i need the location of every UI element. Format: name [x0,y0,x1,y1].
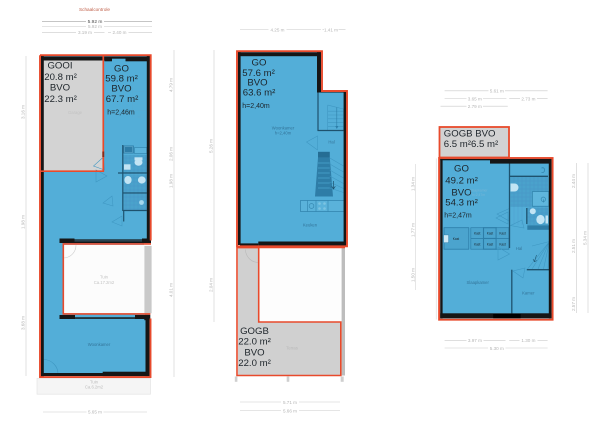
svg-text:Kast: Kast [499,232,505,236]
svg-text:BVO: BVO [111,83,131,94]
svg-text:2.40 m: 2.40 m [112,30,126,35]
svg-text:63.6 m²: 63.6 m² [243,88,276,99]
svg-text:h=2,40m: h=2,40m [242,103,270,110]
svg-text:BVO: BVO [244,348,264,359]
svg-text:3.68 m: 3.68 m [21,316,26,330]
svg-text:GO: GO [454,164,469,175]
svg-text:1.34 m: 1.34 m [410,177,415,191]
svg-text:1.98 m: 1.98 m [169,174,174,188]
svg-text:6.5 m²6.5 m²: 6.5 m²6.5 m² [444,139,499,150]
svg-text:h=2,46m: h=2,46m [107,109,135,116]
svg-text:1.98 m: 1.98 m [21,215,26,229]
svg-text:2.44 m: 2.44 m [571,174,576,188]
svg-text:2.51 m: 2.51 m [571,239,576,253]
svg-text:5.61 m: 5.61 m [490,89,504,94]
svg-text:GOGB BVO: GOGB BVO [444,128,496,139]
svg-text:h=2,40m: h=2,40m [275,131,292,136]
svg-text:1.77 m: 1.77 m [410,223,415,237]
svg-text:5.26 m: 5.26 m [209,139,214,153]
svg-text:5.65 m: 5.65 m [88,410,102,415]
svg-text:67.7 m²: 67.7 m² [106,94,139,105]
svg-text:Kast: Kast [474,232,480,236]
svg-text:3.97 m: 3.97 m [468,338,482,343]
svg-text:Kamer: Kamer [522,290,535,295]
svg-text:Schaalcontrole: Schaalcontrole [79,7,110,12]
svg-text:22.3 m²: 22.3 m² [44,94,77,105]
svg-text:2.73 m: 2.73 m [521,96,535,101]
svg-text:GOOI: GOOI [47,60,72,71]
svg-text:Kast: Kast [487,242,493,246]
svg-text:Kast: Kast [487,232,493,236]
svg-text:Ca.17.2m2: Ca.17.2m2 [94,280,115,285]
svg-text:3.16 m: 3.16 m [21,105,26,119]
svg-text:5.66 m: 5.66 m [283,409,297,414]
svg-text:h=2,47m: h=2,47m [472,193,485,197]
svg-text:5.92 m: 5.92 m [88,24,102,29]
svg-text:Tuin: Tuin [100,275,109,280]
svg-text:Ca.6.2m2: Ca.6.2m2 [85,385,104,390]
svg-text:2.06 m: 2.06 m [169,147,174,161]
svg-text:1.50 m: 1.50 m [410,268,415,282]
svg-text:4.79 m: 4.79 m [169,78,174,92]
svg-text:Slaapkamer: Slaapkamer [467,280,490,285]
svg-text:BVO: BVO [50,82,70,93]
svg-text:5.30 m: 5.30 m [490,346,504,351]
svg-text:22.0 m²: 22.0 m² [238,337,271,348]
svg-text:Kast: Kast [499,242,505,246]
svg-text:4.25 m: 4.25 m [270,27,284,32]
svg-text:Garage: Garage [68,110,83,115]
svg-text:Kast: Kast [474,242,480,246]
svg-text:Kast: Kast [453,237,459,241]
svg-text:1.41 m: 1.41 m [324,27,338,32]
svg-text:Keuken: Keuken [303,223,318,228]
svg-text:Hal: Hal [516,246,522,251]
svg-text:54.3 m²: 54.3 m² [445,197,478,208]
svg-text:5.71 m: 5.71 m [283,400,297,405]
svg-text:1.30 m: 1.30 m [521,338,535,343]
svg-text:h=2,47m: h=2,47m [444,212,472,219]
svg-text:GOGB: GOGB [240,326,269,337]
svg-text:Woonkamer: Woonkamer [88,342,111,347]
svg-text:GO: GO [252,58,267,69]
svg-text:4.01 m: 4.01 m [169,283,174,297]
svg-text:2.57 m: 2.57 m [571,297,576,311]
svg-text:5.34 m: 5.34 m [583,231,588,245]
svg-text:22.0 m²: 22.0 m² [238,358,271,369]
svg-text:3.19 m: 3.19 m [78,30,92,35]
svg-text:3.65 m: 3.65 m [468,96,482,101]
svg-text:49.2 m²: 49.2 m² [445,175,478,186]
svg-text:Hal: Hal [328,140,334,145]
svg-text:Terras: Terras [286,346,298,351]
svg-text:2.79 m: 2.79 m [468,104,482,109]
svg-text:2.04 m: 2.04 m [209,278,214,292]
